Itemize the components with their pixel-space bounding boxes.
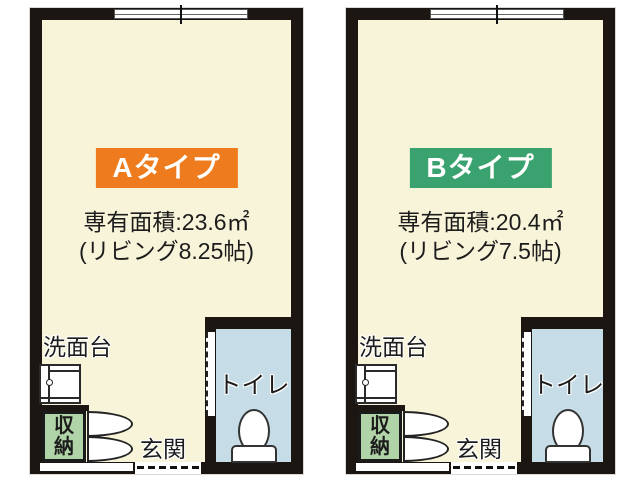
washbasin-icon — [355, 364, 397, 404]
toilet-door-icon — [522, 332, 531, 416]
washbasin-icon — [39, 364, 81, 404]
storage-closet: 収 納 — [42, 411, 86, 462]
washbasin-knob — [362, 379, 369, 386]
closet-door-icon — [403, 411, 449, 462]
window-center-tick — [496, 5, 498, 24]
entrance-door-threshold — [451, 462, 517, 474]
washbasin-label: 洗面台 — [43, 328, 112, 362]
entrance-door-dashes — [453, 466, 515, 469]
washbasin-counter-line — [366, 370, 395, 372]
toilet-icon — [216, 409, 291, 462]
washbasin-label: 洗面台 — [359, 328, 428, 362]
wall-opening — [356, 463, 449, 471]
toilet-label: トイレ — [216, 365, 291, 400]
washbasin-knob — [46, 379, 53, 386]
toilet-label: トイレ — [532, 365, 603, 400]
storage-label-char-bottom: 納 — [54, 437, 74, 458]
entrance-door-threshold — [135, 462, 201, 474]
living-area-text: (リビング8.25帖) — [30, 232, 303, 266]
washbasin-base-line — [357, 397, 395, 399]
door-leaf-bottom — [403, 436, 449, 462]
toilet-tank-icon — [545, 445, 591, 463]
toilet-tank-icon — [231, 445, 277, 463]
washbasin-base-line — [41, 397, 79, 399]
storage-label-char-bottom: 納 — [370, 437, 390, 458]
entrance-label: 玄関 — [456, 430, 502, 464]
type-badge: Aタイプ — [95, 148, 237, 188]
door-leaf-top — [87, 411, 133, 437]
storage-label-char-top: 収 — [54, 416, 74, 437]
door-leaf-bottom — [87, 436, 133, 462]
washbasin-counter-line — [50, 370, 79, 372]
storage-closet: 収 納 — [358, 411, 402, 462]
entrance-door-dashes — [137, 466, 199, 469]
window-center-tick — [180, 5, 182, 24]
toilet-door-icon — [206, 332, 215, 416]
floor-plan-type-a: Aタイプ 専有面積:23.6㎡ (リビング8.25帖) 洗面台 収 納 玄関 ト… — [30, 8, 303, 474]
toilet-icon — [532, 409, 603, 462]
type-badge: Bタイプ — [409, 148, 551, 188]
living-area-text: (リビング7.5帖) — [346, 232, 615, 266]
storage-label-char-top: 収 — [370, 416, 390, 437]
door-leaf-top — [403, 411, 449, 437]
floor-plan-type-b: Bタイプ 専有面積:20.4㎡ (リビング7.5帖) 洗面台 収 納 玄関 トイ… — [346, 8, 615, 474]
entrance-label: 玄関 — [140, 430, 186, 464]
wall-opening — [40, 463, 133, 471]
closet-door-icon — [87, 411, 133, 462]
